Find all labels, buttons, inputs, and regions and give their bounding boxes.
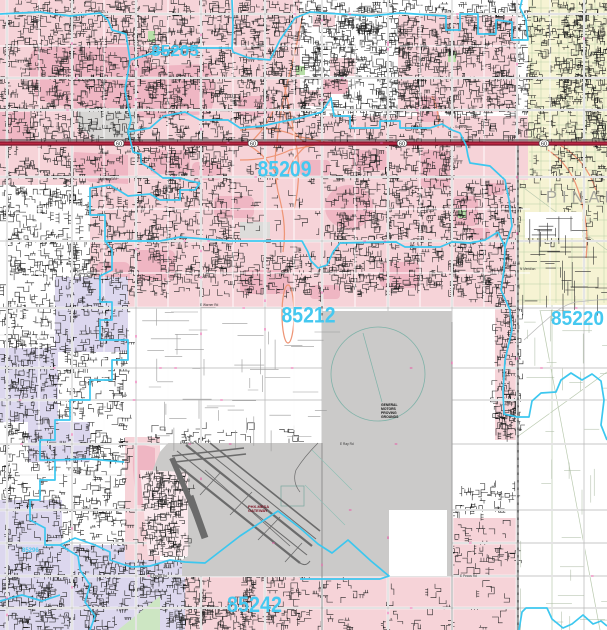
svg-text:E Warner Rd: E Warner Rd [200, 303, 219, 307]
svg-text:85220: 85220 [551, 307, 604, 330]
svg-text:PINAL: PINAL [546, 189, 607, 207]
svg-text:60: 60 [399, 141, 405, 147]
svg-text:E Pecos Rd: E Pecos Rd [150, 574, 167, 578]
svg-text:60: 60 [250, 141, 256, 147]
svg-text:Superstition: Superstition [455, 125, 472, 129]
svg-text:E Buckhorn: E Buckhorn [88, 9, 105, 13]
svg-text:GROUNDS: GROUNDS [381, 415, 399, 419]
svg-text:60: 60 [541, 141, 547, 147]
svg-text:Fountain of: Fountain of [20, 67, 36, 71]
svg-text:E Ray Rd: E Ray Rd [340, 442, 354, 446]
svg-text:85212: 85212 [282, 303, 336, 328]
svg-text:GATEWAY: GATEWAY [248, 508, 268, 513]
svg-text:85242: 85242 [227, 592, 282, 617]
svg-text:85205: 85205 [151, 43, 199, 60]
svg-text:E Pecos Rd: E Pecos Rd [460, 574, 477, 578]
svg-text:60: 60 [116, 141, 122, 147]
svg-text:85296: 85296 [22, 548, 39, 554]
svg-text:E Baseline Rd: E Baseline Rd [340, 227, 360, 231]
svg-text:Leisure Wld: Leisure Wld [100, 177, 117, 181]
svg-text:E Ray Rd: E Ray Rd [180, 441, 194, 445]
svg-text:N Meridian: N Meridian [520, 267, 536, 271]
svg-text:85209: 85209 [258, 157, 312, 182]
svg-text:Sunland Vlg: Sunland Vlg [230, 99, 247, 103]
